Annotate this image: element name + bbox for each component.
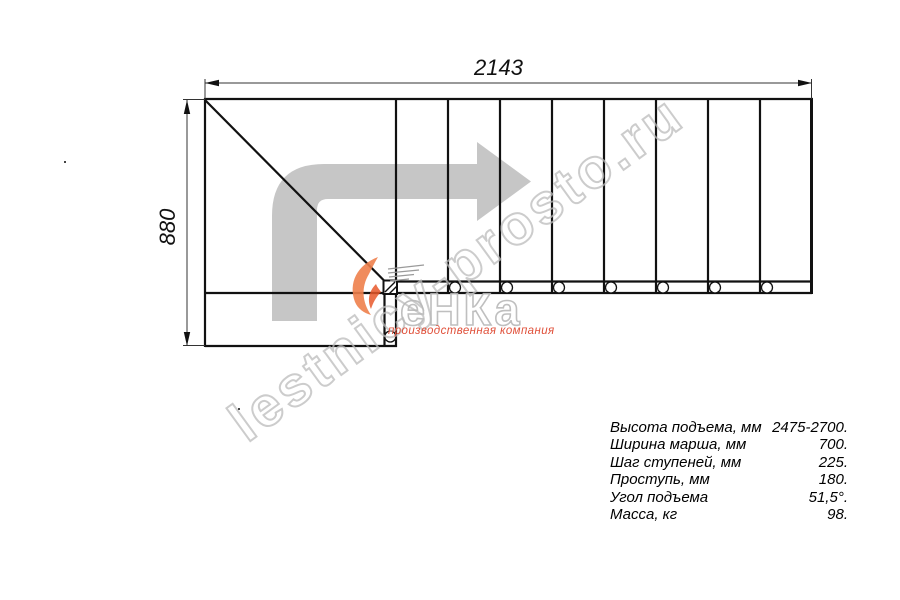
bolt-circle [762,282,773,293]
spec-value: 180. [819,471,848,488]
spec-value: 225. [819,454,848,471]
print-speck [64,161,66,163]
spec-value: 98. [827,506,848,523]
bolt-circle [658,282,669,293]
spec-value: 700. [819,436,848,453]
bolt-circle [606,282,617,293]
spec-label: Ширина марша, мм [610,436,746,453]
spec-label: Шаг ступеней, мм [610,454,741,471]
logo-subtitle: производственная компания [388,325,555,337]
spec-label: Проступь, мм [610,471,710,488]
spec-value: 2475-2700. [772,419,848,436]
speed-lines [388,265,424,281]
spec-value: 51,5°. [809,489,848,506]
spec-label: Масса, кг [610,506,677,523]
spec-row: Высота подъема, мм 2475-2700. [610,419,848,436]
spec-row: Проступь, мм 180. [610,471,848,488]
corner-post [384,281,398,295]
print-speck [238,408,240,410]
spec-table: Высота подъема, мм 2475-2700. Ширина мар… [610,419,848,523]
bolt-circle [554,282,565,293]
bolt-circle [710,282,721,293]
dimension-height-label: 880 [155,207,181,247]
spec-label: Высота подъема, мм [610,419,762,436]
stair-drawing-page: 2143 880 lestnicy-prosto.ru еНКа произво… [0,0,900,600]
spec-row: Угол подъема 51,5°. [610,489,848,506]
spec-row: Шаг ступеней, мм 225. [610,454,848,471]
spec-row: Масса, кг 98. [610,506,848,523]
spec-label: Угол подъема [610,489,708,506]
spec-row: Ширина марша, мм 700. [610,436,848,453]
dimension-width-label: 2143 [474,55,523,81]
